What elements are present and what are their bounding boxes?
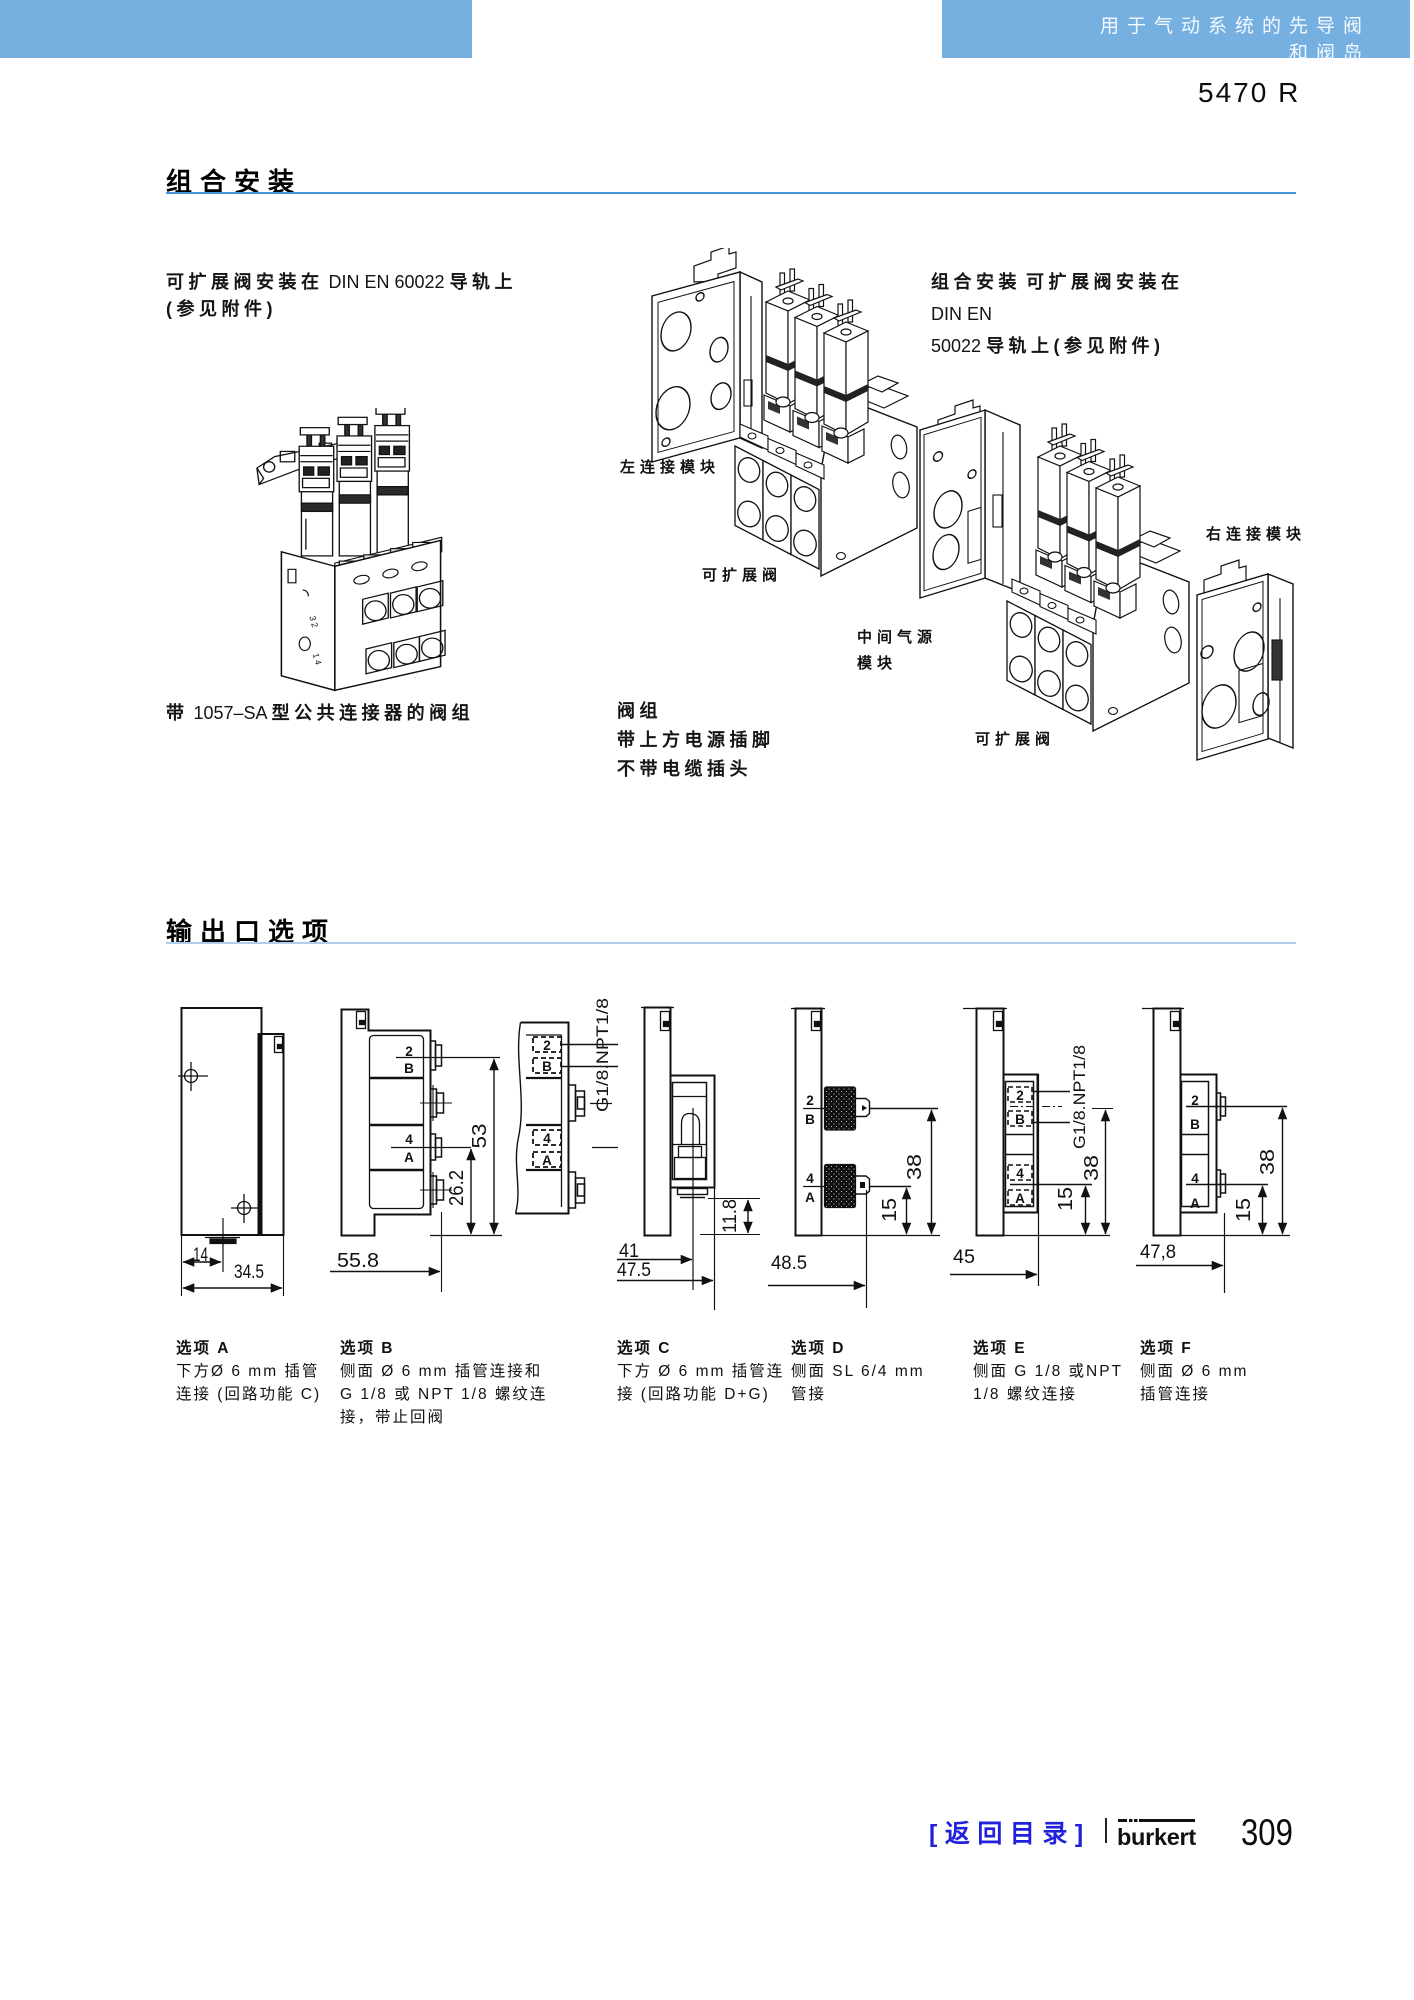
svg-text:4: 4 (405, 1132, 413, 1147)
svg-text:4: 4 (1016, 1166, 1024, 1181)
svg-text:15: 15 (879, 1198, 901, 1222)
svg-text:38: 38 (904, 1154, 926, 1180)
svg-text:38: 38 (1081, 1155, 1103, 1181)
svg-text:4: 4 (543, 1131, 551, 1146)
svg-text:48.5: 48.5 (771, 1253, 807, 1274)
svg-text:burkert: burkert (1117, 1824, 1196, 1847)
svg-text:A: A (1015, 1191, 1025, 1206)
svg-text:B: B (404, 1061, 414, 1076)
svg-text:A: A (404, 1150, 414, 1165)
svg-text:53: 53 (469, 1124, 491, 1149)
svg-text:14: 14 (193, 1245, 208, 1266)
svg-text:4: 4 (1191, 1171, 1199, 1186)
svg-text:15: 15 (1055, 1187, 1077, 1211)
svg-text:26.2: 26.2 (446, 1170, 468, 1206)
svg-text:A: A (542, 1153, 552, 1168)
svg-text:38: 38 (1257, 1149, 1279, 1175)
svg-text:47,8: 47,8 (1140, 1242, 1176, 1263)
svg-text:34.5: 34.5 (234, 1262, 264, 1283)
svg-text:47.5: 47.5 (617, 1260, 651, 1281)
svg-text:11.8: 11.8 (720, 1199, 741, 1233)
svg-text:G1/8.NPT1/8: G1/8.NPT1/8 (593, 998, 612, 1112)
svg-text:45: 45 (953, 1247, 975, 1268)
svg-text:2: 2 (405, 1044, 413, 1059)
svg-text:B: B (542, 1059, 552, 1074)
svg-text:2: 2 (1016, 1088, 1024, 1103)
svg-text:2: 2 (543, 1038, 551, 1053)
svg-text:4: 4 (806, 1171, 814, 1186)
svg-text:B: B (805, 1112, 815, 1127)
svg-text:2: 2 (1191, 1093, 1199, 1108)
svg-text:2: 2 (806, 1093, 814, 1108)
svg-text:B: B (1190, 1117, 1200, 1132)
svg-text:G1/8.NPT1/8: G1/8.NPT1/8 (1070, 1045, 1089, 1149)
svg-text:A: A (1190, 1196, 1200, 1211)
svg-text:55.8: 55.8 (337, 1250, 379, 1272)
svg-text:15: 15 (1233, 1198, 1255, 1222)
svg-text:B: B (1015, 1112, 1025, 1127)
svg-text:A: A (805, 1190, 815, 1205)
